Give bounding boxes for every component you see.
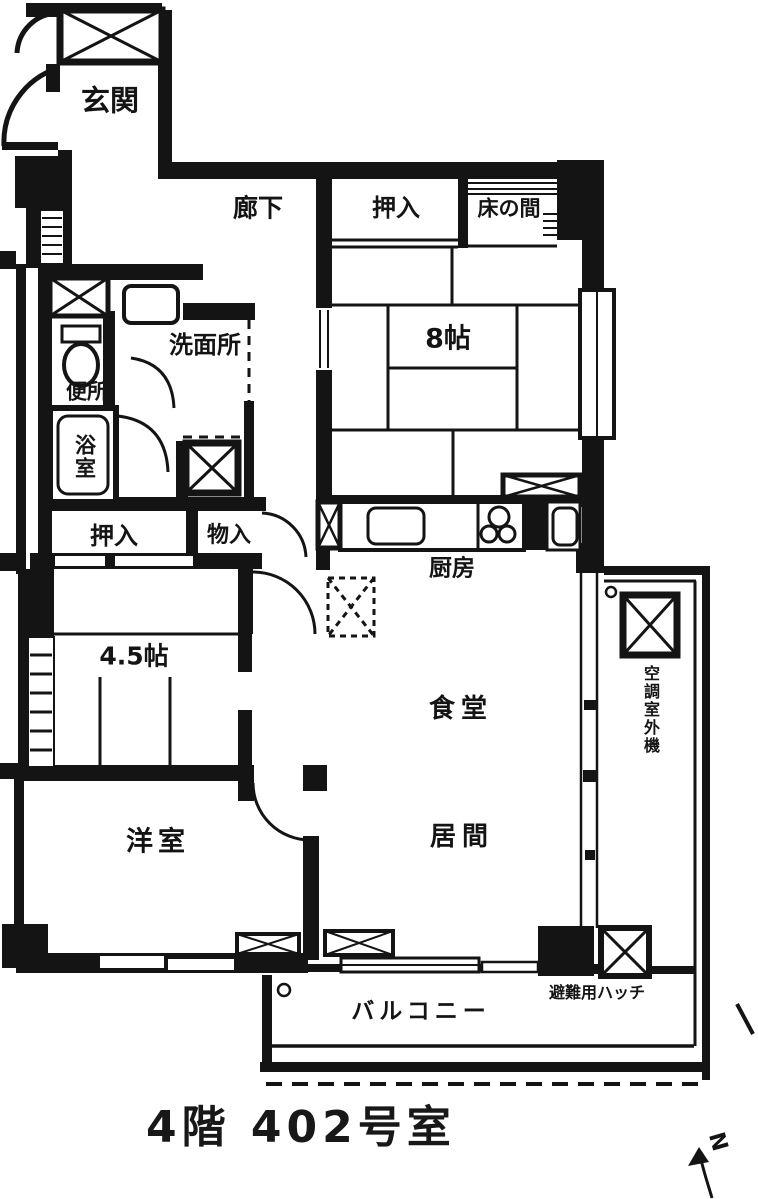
wash-basin bbox=[124, 286, 178, 323]
label-ac-outdoor-unit: 空調室外機 bbox=[642, 665, 658, 755]
tatami-grid-8mat bbox=[332, 240, 580, 495]
meter-box-xbox bbox=[186, 443, 238, 493]
storage-xbox-8mat bbox=[503, 475, 580, 497]
hall-door bbox=[246, 568, 315, 634]
room-label-bath: 浴室 bbox=[74, 434, 95, 480]
kitchen-side-xbox bbox=[318, 502, 340, 548]
room-label-living: 居間 bbox=[430, 824, 494, 850]
room-label-storage: 物入 bbox=[207, 525, 251, 547]
room-label-8mat: 8帖 bbox=[425, 326, 471, 353]
balcony-drain-2 bbox=[278, 984, 290, 996]
label-escape-hatch: 避難用ハッチ bbox=[549, 985, 645, 1001]
room-label-toilet: 便所 bbox=[66, 382, 108, 403]
room-label-washroom: 洗面所 bbox=[169, 333, 241, 357]
room-label-tokonoma: 床の間 bbox=[478, 199, 541, 220]
floor-access-dashed-xbox bbox=[328, 578, 374, 636]
ac-unit-xbox bbox=[623, 595, 677, 655]
south-sliding-doors bbox=[341, 958, 538, 972]
refrigerator bbox=[547, 502, 580, 550]
vent-louver-xbox-2 bbox=[325, 931, 393, 955]
room-label-western-room: 洋室 bbox=[126, 829, 190, 856]
room-label-4-5mat: 4.5帖 bbox=[99, 644, 168, 669]
kitchen-sink bbox=[368, 508, 424, 544]
east-glass-doors bbox=[581, 573, 597, 928]
escape-hatch-xbox bbox=[601, 928, 649, 976]
room-label-entrance: 玄関 bbox=[81, 87, 139, 116]
western-room-door-arc bbox=[253, 783, 310, 840]
room-label-dining: 食堂 bbox=[429, 696, 493, 722]
west-window-hatch bbox=[28, 637, 54, 767]
neighbor-balcony-line bbox=[737, 1004, 753, 1034]
plan-caption: 4階 402号室 bbox=[146, 1106, 456, 1150]
north-arrow bbox=[688, 1147, 712, 1198]
room-label-closet-lower: 押入 bbox=[90, 524, 138, 548]
east-window bbox=[580, 290, 614, 438]
floor-plan: 玄関 廊下 押入 床の間 8帖 洗面所 便所 浴室 押入 物入 4.5帖 厨房 … bbox=[0, 0, 758, 1199]
toilet bbox=[62, 326, 100, 386]
room-label-corridor: 廊下 bbox=[233, 196, 283, 221]
vent-louver-xbox-1 bbox=[237, 934, 299, 954]
kitchen-counter bbox=[340, 502, 524, 550]
balcony-drain-1 bbox=[606, 587, 616, 597]
washing-machine-xbox bbox=[50, 278, 108, 316]
room-label-balcony: バルコニー bbox=[351, 1001, 491, 1024]
elevator-shaft-xbox bbox=[60, 10, 162, 62]
room-label-closet-upper: 押入 bbox=[372, 196, 420, 220]
room-label-kitchen: 厨房 bbox=[429, 558, 475, 581]
sliding-door-8mat bbox=[316, 308, 332, 370]
